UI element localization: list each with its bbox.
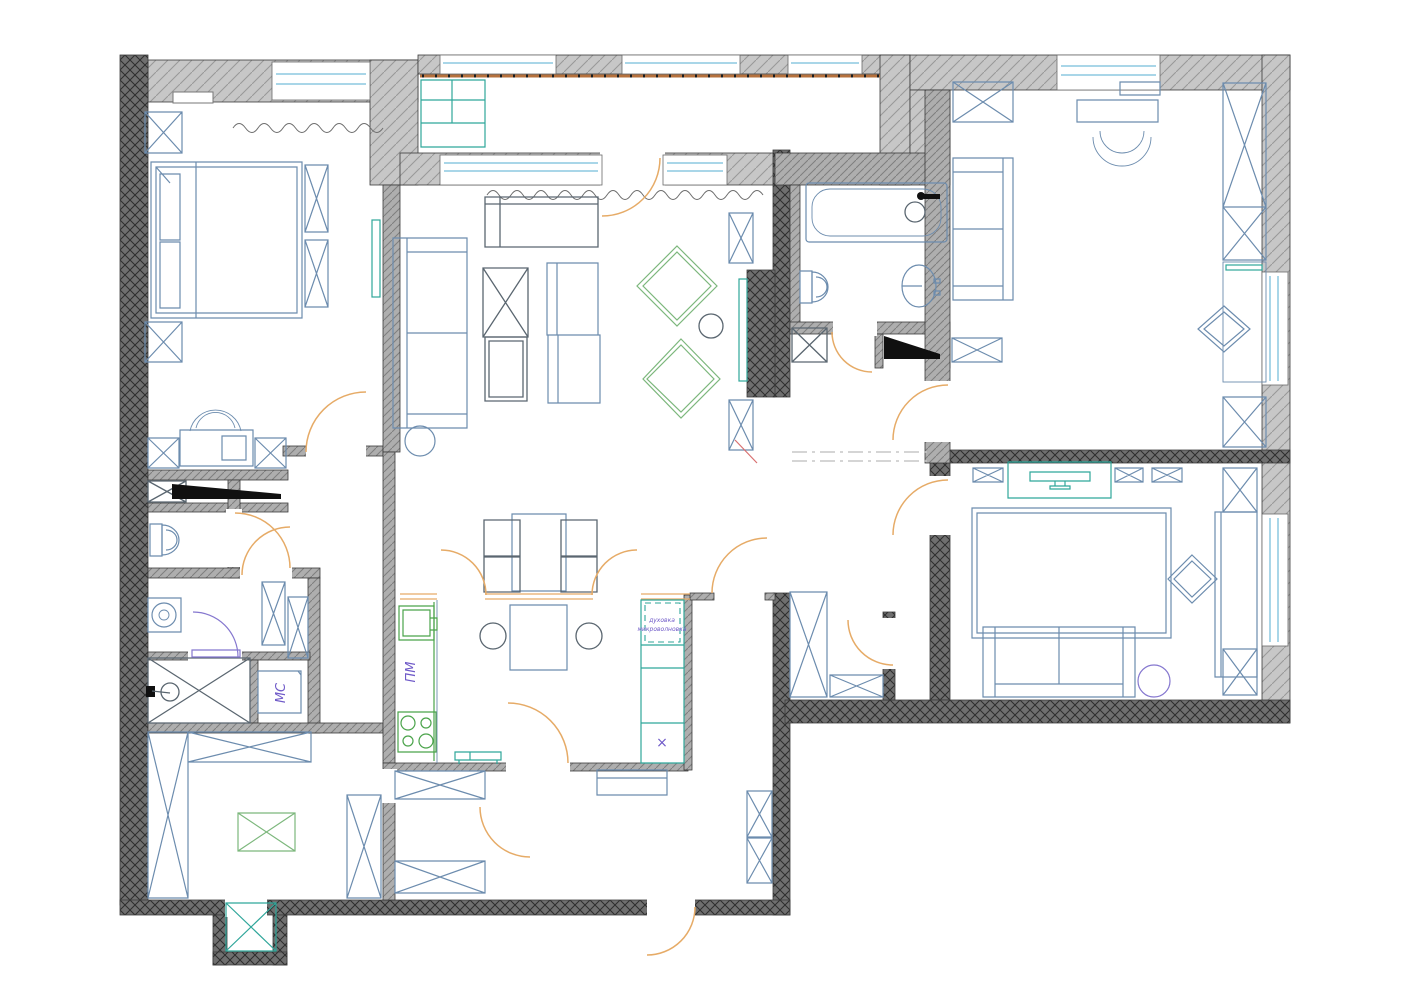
opening-bathroom-door bbox=[833, 320, 877, 336]
wall-dressing-bottom bbox=[148, 470, 288, 480]
wall-bathroom-left bbox=[790, 185, 800, 330]
opening-bedroom1-door bbox=[306, 444, 366, 458]
tv-bedroom1-icon bbox=[372, 220, 380, 297]
window-balcony-1 bbox=[440, 55, 556, 74]
window-bedroom1 bbox=[272, 62, 370, 100]
glass-partition bbox=[400, 594, 690, 599]
tv-console-icon bbox=[1008, 462, 1111, 498]
wc-toilet-icon bbox=[162, 525, 179, 555]
office-sofa-icon bbox=[953, 158, 1013, 300]
annotation-line bbox=[735, 440, 757, 463]
opening-office-door bbox=[923, 381, 952, 442]
opening-laundry-door bbox=[240, 566, 292, 580]
bedroom-2 bbox=[972, 462, 1257, 697]
closet-shelving-icon bbox=[148, 732, 381, 898]
fridge-mark: × bbox=[656, 735, 668, 751]
toilet-tank-icon bbox=[800, 271, 812, 303]
wall-tv-pilaster bbox=[747, 270, 775, 397]
wall-closet-right bbox=[383, 802, 395, 900]
lounge-chairs-icon bbox=[547, 263, 600, 403]
stool-icon bbox=[480, 623, 506, 649]
opening-entrance-door bbox=[647, 898, 695, 917]
oven-label-2: микроволновка bbox=[637, 626, 686, 633]
nightstands-and-dressers-icon bbox=[145, 112, 328, 468]
living-room bbox=[393, 191, 763, 600]
wall-bay-bottom bbox=[213, 952, 287, 965]
tv-living-icon bbox=[739, 279, 747, 381]
entry-bench-icon bbox=[597, 770, 667, 795]
office bbox=[952, 82, 1266, 447]
wall-hall-kitchen bbox=[383, 452, 395, 763]
dressing-table-icon bbox=[180, 430, 253, 466]
door-closet bbox=[480, 807, 530, 857]
window-balcony-2 bbox=[622, 55, 740, 74]
bed-icon bbox=[972, 508, 1171, 638]
window-sill-shelf bbox=[173, 92, 213, 103]
opening-wc-door bbox=[226, 509, 242, 567]
burner-icon bbox=[403, 736, 413, 746]
dishwasher-label: ПМ bbox=[404, 662, 419, 683]
desk-icon bbox=[1077, 100, 1158, 122]
opening-nook-door bbox=[881, 618, 897, 669]
balcony bbox=[420, 76, 880, 147]
floor-plan-page: ПМ духовка микроволновка × bbox=[0, 0, 1413, 1000]
wall-left-exterior bbox=[120, 55, 148, 905]
sideboard-icon bbox=[485, 197, 598, 247]
wc-toilet-tank-icon bbox=[150, 524, 162, 556]
door-bathroom bbox=[832, 332, 872, 372]
wall-niche-left bbox=[875, 334, 883, 368]
bedroom2-wardrobes-icon bbox=[1223, 468, 1257, 695]
dressing-stool-icon bbox=[190, 410, 241, 431]
laundry-cabinets-icon bbox=[262, 582, 308, 658]
pouf-icon bbox=[1138, 665, 1170, 697]
door-partition-right bbox=[592, 550, 637, 595]
kitchen-table-icon bbox=[510, 605, 567, 670]
ottoman-icon bbox=[485, 337, 527, 401]
door-passage bbox=[712, 538, 767, 593]
wall-shower-mc-divider bbox=[250, 660, 258, 723]
washing-machine-door bbox=[159, 610, 169, 620]
window-bedroom2-right bbox=[1262, 514, 1288, 646]
window-office-top bbox=[1057, 55, 1160, 90]
entry-wardrobes-icon bbox=[395, 771, 772, 893]
washing-machine-drum-icon bbox=[152, 603, 176, 627]
wall-bedroom1-right bbox=[383, 185, 400, 452]
floor-plan-canvas: ПМ духовка микроволновка × bbox=[0, 0, 1413, 1000]
kitchen-tv-bench-icon bbox=[455, 752, 501, 764]
office-open-shelf bbox=[1223, 262, 1266, 382]
desk-chair-icon bbox=[1093, 131, 1151, 166]
curtain-icon bbox=[487, 191, 763, 200]
wall-office-bedroom2-divider bbox=[930, 450, 1290, 463]
wall-kitchen-right bbox=[684, 595, 692, 770]
bath-faucet-dot bbox=[917, 192, 925, 200]
tv-side-cabinets-icon bbox=[973, 468, 1182, 482]
oven-label-1: духовка bbox=[648, 617, 675, 624]
bath-faucet-icon bbox=[924, 194, 940, 199]
kitchen: ПМ духовка микроволновка × bbox=[398, 600, 687, 764]
shower-tray-icon bbox=[148, 658, 250, 723]
wall-niche-bottom bbox=[148, 503, 288, 512]
wall-spine-lower bbox=[773, 593, 790, 915]
opening-kitchen-door bbox=[506, 761, 570, 773]
burner-icon bbox=[421, 718, 431, 728]
side-table-icon bbox=[405, 426, 435, 456]
door-wc bbox=[235, 513, 290, 568]
wall-spine-upper bbox=[773, 150, 790, 397]
wall-living-bottom-stub1 bbox=[690, 593, 714, 600]
wall-bottom-right bbox=[785, 700, 1290, 723]
armchair-icon bbox=[483, 268, 528, 337]
walk-in-closet bbox=[148, 732, 381, 951]
office-pouf-icon bbox=[1198, 306, 1250, 352]
corridor bbox=[790, 328, 928, 697]
opening-bedroom2-door bbox=[926, 476, 952, 535]
door-partition-left bbox=[441, 550, 486, 595]
wall-bathroom-top bbox=[775, 153, 950, 185]
door-shower bbox=[192, 612, 240, 657]
opening-shower-door bbox=[188, 650, 242, 662]
shoe-shelf-icon bbox=[172, 484, 281, 499]
burner-icon bbox=[401, 716, 415, 730]
corridor-wardrobes-icon bbox=[790, 592, 883, 697]
bed-icon bbox=[151, 162, 302, 318]
bedroom-1 bbox=[145, 92, 383, 468]
door-bedroom1 bbox=[306, 392, 366, 452]
wall-kitchen-bottom-left bbox=[383, 763, 508, 771]
small-table-icon bbox=[699, 314, 723, 338]
washer-label: МС bbox=[274, 682, 289, 703]
tv-icon bbox=[1030, 472, 1090, 489]
dining-chairs-icon bbox=[484, 520, 597, 592]
office-cabinets-icon bbox=[952, 82, 1013, 362]
closet-island-icon bbox=[238, 813, 295, 851]
bathtub-drain-icon bbox=[905, 202, 925, 222]
bedroom2-pouf-icon bbox=[1168, 555, 1217, 603]
stool-icon bbox=[576, 623, 602, 649]
wall-wc-laundry bbox=[148, 568, 320, 578]
toilet-icon bbox=[812, 272, 828, 302]
burner-icon bbox=[419, 734, 433, 748]
curtain-icon bbox=[233, 124, 383, 133]
sofa-icon bbox=[393, 238, 467, 428]
window-balcony-3 bbox=[788, 55, 862, 74]
ceiling-dash-lines bbox=[792, 452, 928, 461]
wall-living-bottom-stub2 bbox=[765, 593, 775, 600]
wardrobe-panel-icon bbox=[1215, 512, 1257, 677]
kitchen-sink-icon bbox=[399, 606, 437, 640]
coffee-tables-icon bbox=[637, 246, 720, 418]
office-shelf-icon bbox=[1226, 265, 1262, 270]
balcony-cabinet-icon bbox=[421, 80, 485, 147]
door-kitchen bbox=[508, 703, 568, 763]
entry-hall bbox=[395, 770, 772, 893]
